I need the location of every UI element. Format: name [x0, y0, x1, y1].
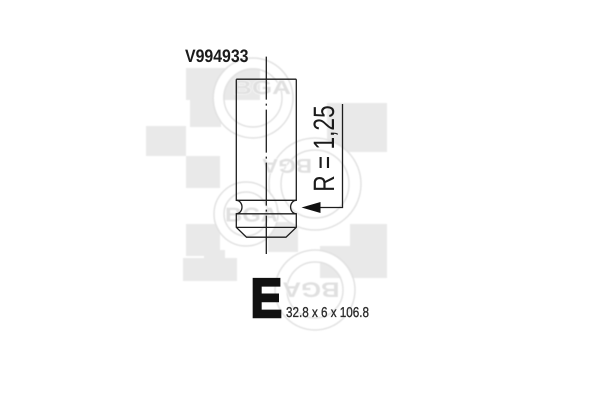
- svg-text:BGA: BGA: [233, 77, 291, 99]
- svg-text:BGA: BGA: [225, 205, 278, 227]
- svg-text:32.8 x 6 x 106.8: 32.8 x 6 x 106.8: [286, 305, 369, 321]
- svg-text:R = 1,25: R = 1,25: [308, 105, 341, 192]
- svg-text:E: E: [251, 267, 282, 329]
- svg-text:BGA: BGA: [262, 154, 312, 176]
- svg-text:V994933: V994933: [185, 46, 249, 66]
- svg-text:BGA: BGA: [283, 278, 340, 301]
